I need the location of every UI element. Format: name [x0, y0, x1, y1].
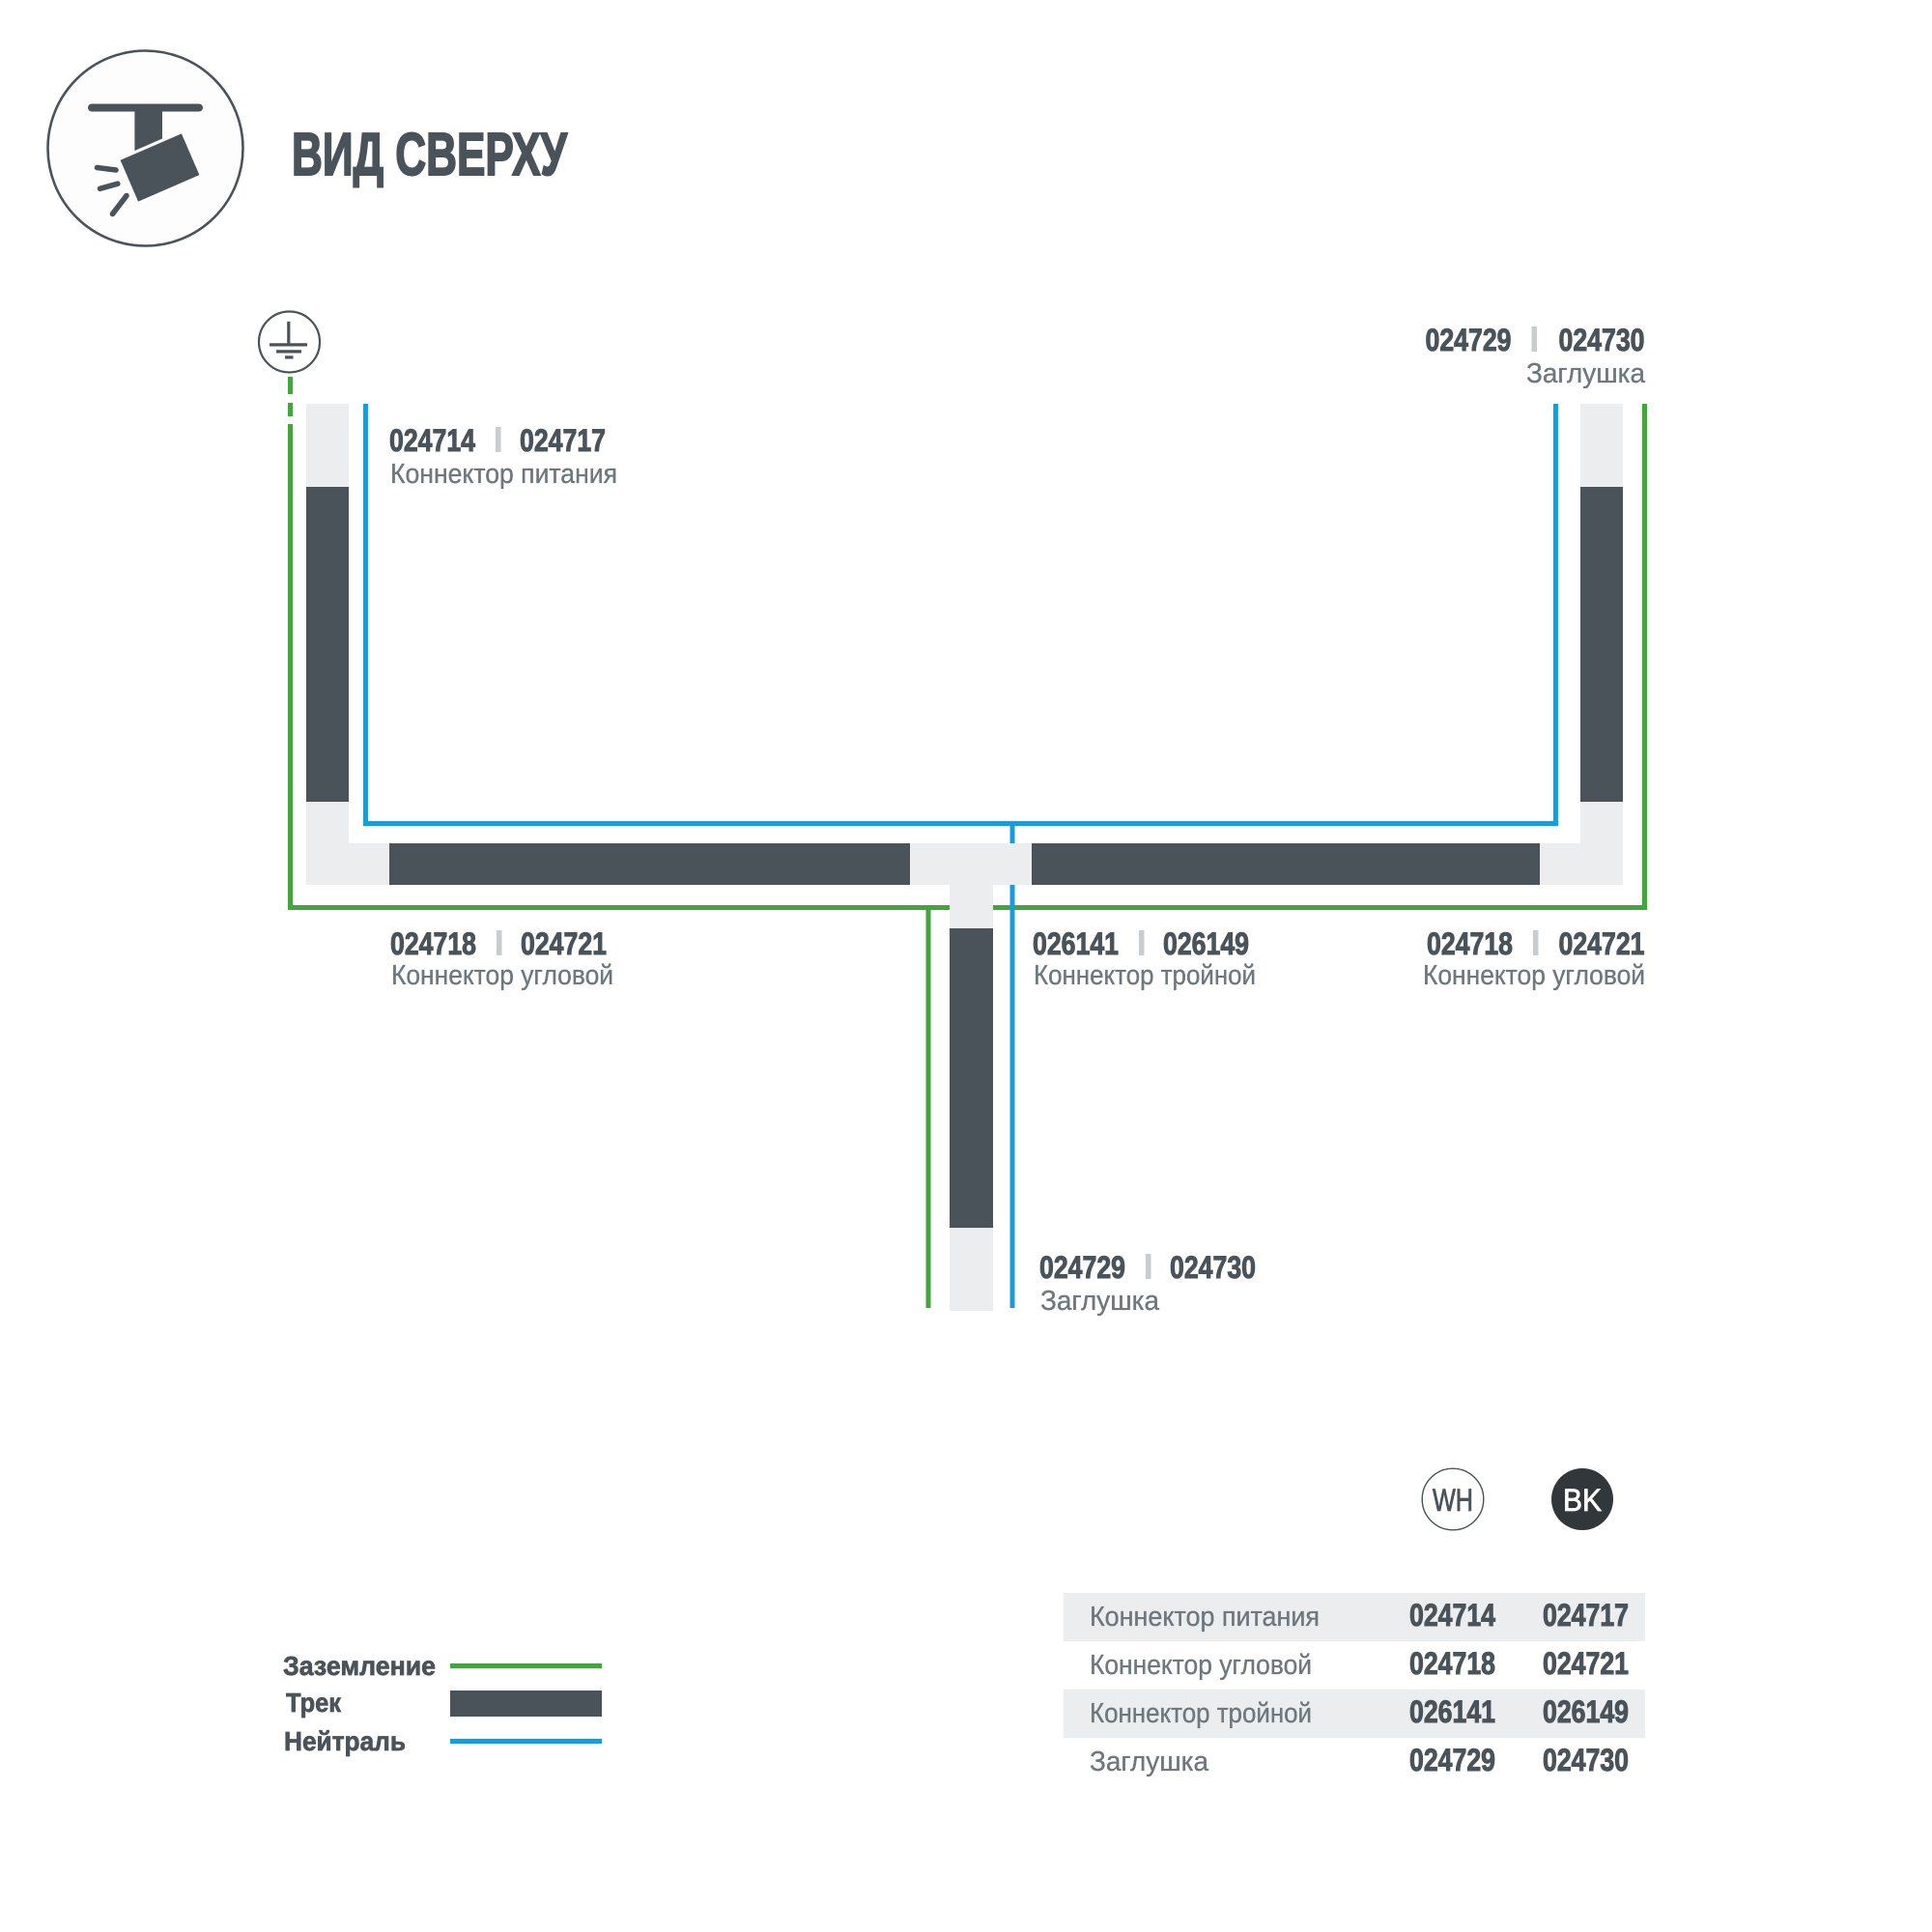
svg-text:024718: 024718 — [1409, 1646, 1495, 1681]
svg-text:024714: 024714 — [1409, 1598, 1495, 1633]
svg-text:Коннектор питания: Коннектор питания — [390, 459, 617, 490]
svg-text:Коннектор угловой: Коннектор угловой — [1423, 960, 1645, 991]
svg-text:024717: 024717 — [520, 423, 606, 458]
svg-text:024729: 024729 — [1039, 1250, 1125, 1285]
svg-text:024729: 024729 — [1409, 1743, 1495, 1777]
svg-text:024730: 024730 — [1559, 323, 1645, 357]
svg-text:Заглушка: Заглушка — [1526, 358, 1646, 389]
svg-text:026141: 026141 — [1033, 926, 1119, 961]
svg-text:024721: 024721 — [521, 926, 607, 961]
svg-text:024718: 024718 — [390, 926, 476, 961]
svg-text:024721: 024721 — [1543, 1646, 1629, 1681]
svg-text:Заглушка: Заглушка — [1040, 1286, 1160, 1317]
svg-text:Заглушка: Заглушка — [1090, 1747, 1209, 1777]
svg-text:024717: 024717 — [1543, 1598, 1629, 1633]
svg-text:ВИД СВЕРХУ: ВИД СВЕРХУ — [292, 122, 568, 188]
svg-text:026141: 026141 — [1409, 1694, 1495, 1729]
svg-text:026149: 026149 — [1543, 1694, 1629, 1729]
svg-text:024729: 024729 — [1426, 323, 1512, 357]
svg-text:BK: BK — [1563, 1483, 1602, 1518]
svg-text:Коннектор питания: Коннектор питания — [1090, 1602, 1320, 1633]
svg-text:Коннектор угловой: Коннектор угловой — [391, 960, 613, 991]
svg-text:024730: 024730 — [1170, 1250, 1256, 1285]
svg-text:Нейтраль: Нейтраль — [284, 1726, 406, 1756]
svg-text:Коннектор тройной: Коннектор тройной — [1090, 1698, 1312, 1729]
svg-text:024730: 024730 — [1543, 1743, 1629, 1777]
svg-text:026149: 026149 — [1163, 926, 1249, 961]
svg-text:WH: WH — [1433, 1483, 1473, 1518]
svg-text:024714: 024714 — [389, 423, 475, 458]
svg-text:Коннектор тройной: Коннектор тройной — [1034, 960, 1256, 991]
svg-text:Заземление: Заземление — [283, 1651, 436, 1681]
svg-text:Коннектор угловой: Коннектор угловой — [1090, 1650, 1312, 1681]
svg-text:024721: 024721 — [1559, 926, 1645, 961]
svg-text:024718: 024718 — [1427, 926, 1513, 961]
svg-text:Трек: Трек — [286, 1688, 342, 1718]
